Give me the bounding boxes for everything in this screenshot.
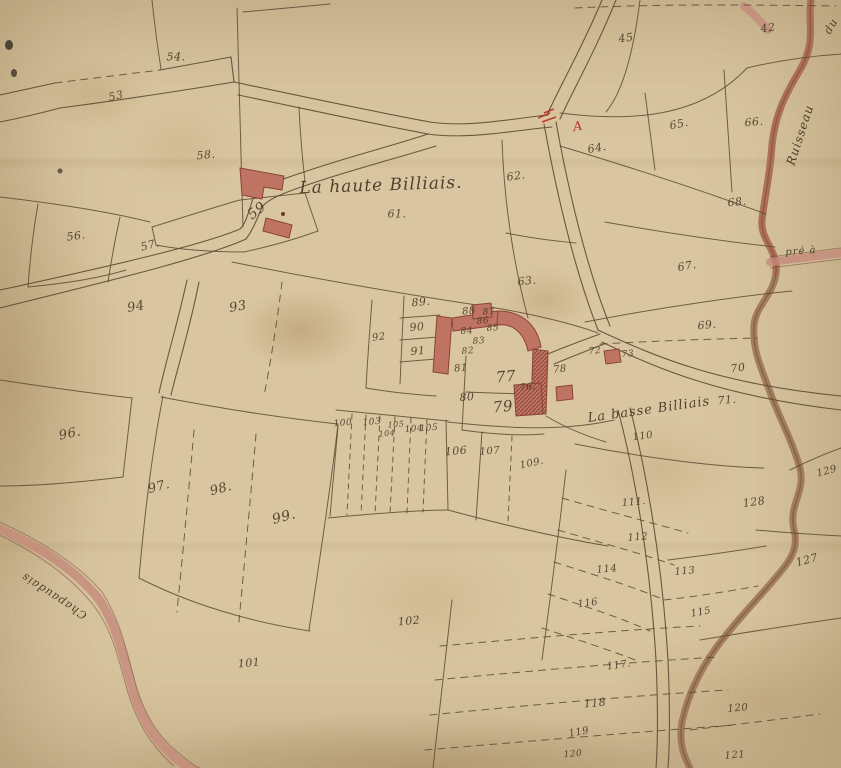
parcel-label-127: 127 [795, 552, 820, 568]
parcel-label-118: 118 [583, 697, 606, 710]
parcel-label-61: 61. [388, 209, 407, 220]
parcel-label-101: 101 [237, 657, 260, 670]
parcel-label-67: 67. [677, 259, 698, 273]
la-basse-billiais: La basse Billiais [587, 395, 711, 425]
parcel-label-117: 117. [606, 659, 631, 672]
parcel-label-119: 119 [568, 726, 590, 739]
ruisseau: Ruisseau [785, 103, 816, 167]
parcel-label-99: 99. [271, 507, 298, 527]
parcel-label-120: 120 [727, 703, 748, 715]
parcel-label-96: 96. [58, 425, 82, 442]
parcel-label-62: 62. [506, 169, 526, 183]
parcel-label-73: 73 [621, 350, 634, 360]
parcel-label-77: 77 [495, 369, 516, 386]
map-labels-layer: 5354.454258.5956.57.61.62.63.64.65.66.68… [0, 0, 841, 768]
parcel-label-59: 59 [245, 200, 268, 223]
parcel-label-129: 129 [816, 465, 838, 480]
parcel-label-58: 58. [196, 149, 216, 162]
red-letter-a: A [572, 120, 584, 135]
parcel-label-92: 92 [372, 332, 387, 344]
pre-a: pré à [785, 246, 817, 258]
parcel-label-116: 116 [577, 598, 599, 611]
parcel-label-104: 104 [404, 425, 423, 436]
parcel-label-86: 86 [476, 317, 489, 327]
parcel-label-107: 107 [479, 446, 500, 458]
parcel-label-57: 57. [139, 237, 160, 253]
parcel-label-81: 81 [454, 363, 469, 374]
parcel-label-111: 111. [621, 497, 646, 509]
parcel-label-105: 105 [387, 420, 404, 429]
parcel-label-120: 120 [563, 750, 582, 761]
parcel-label-53: 53 [108, 89, 125, 103]
parcel-label-106: 106 [444, 445, 467, 458]
parcel-label-56: 56. [66, 229, 86, 243]
parcel-label-70: 70 [730, 362, 746, 375]
parcel-label-98: 98. [209, 480, 234, 498]
parcel-label-105: 105 [419, 424, 438, 435]
parcel-label-103: 103 [362, 418, 381, 429]
parcel-label-54: 54. [167, 52, 186, 63]
parcel-label-110: 110 [632, 431, 654, 444]
parcel-label-83: 83 [472, 337, 485, 347]
parcel-label-45: 45 [618, 32, 634, 45]
chapaudais: Chapaudais [19, 571, 88, 621]
parcel-label-88: 88 [462, 306, 477, 317]
parcel-label-89: 89. [411, 296, 431, 309]
parcel-label-78: 78 [553, 364, 568, 375]
parcel-label-71: 71. [717, 394, 737, 407]
parcel-label-76: 76. [520, 383, 537, 393]
la-haute-billiais: La haute Billiais. [299, 175, 463, 198]
parcel-label-104: 104 [378, 429, 395, 438]
parcel-label-64: 64. [587, 141, 608, 155]
parcel-label-68: 68. [727, 196, 747, 209]
parcel-label-42: 42 [760, 22, 776, 35]
parcel-label-100: 100 [333, 419, 352, 430]
parcel-label-113: 113 [674, 566, 695, 578]
parcel-label-85: 85 [486, 324, 499, 334]
parcel-label-87: 87 [482, 308, 495, 318]
parcel-label-91: 91 [410, 345, 426, 357]
parcel-label-112: 112 [627, 532, 648, 544]
parcel-label-65: 65. [669, 117, 690, 132]
cadastral-map: 5354.454258.5956.57.61.62.63.64.65.66.68… [0, 0, 841, 768]
parcel-label-94: 94 [126, 299, 146, 315]
parcel-label-90: 90 [409, 321, 425, 333]
parcel-label-66: 66. [744, 116, 764, 129]
parcel-label-80: 80 [459, 391, 475, 403]
parcel-label-114: 114 [596, 564, 617, 576]
parcel-label-93: 93 [228, 299, 248, 315]
parcel-label-115: 115 [690, 606, 712, 619]
parcel-label-69: 69. [697, 319, 717, 332]
parcel-label-79: 79 [492, 399, 513, 416]
parcel-label-63: 63. [517, 275, 537, 288]
parcel-label-82: 82 [461, 347, 474, 357]
parcel-label-72: 72 [588, 347, 601, 357]
parcel-label-121: 121 [724, 750, 745, 762]
parcel-label-84: 84 [460, 327, 473, 337]
parcel-label-109: 109. [519, 457, 545, 472]
ruisseau-du: du [822, 16, 840, 35]
parcel-label-97: 97. [147, 478, 172, 496]
parcel-label-128: 128 [742, 495, 766, 509]
parcel-label-102: 102 [397, 615, 420, 628]
